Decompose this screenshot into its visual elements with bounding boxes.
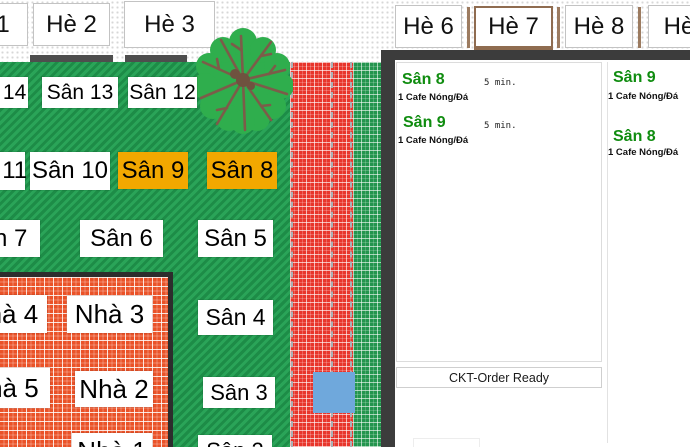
tab-separator [557,7,560,48]
order-item-line: 1 Cafe Nóng/Đá [398,135,468,146]
table-label-text: Sân 2 [206,438,264,447]
ckt-order-ready-label: CKT-Order Ready [449,371,549,385]
tab-label: Hè 6 [403,13,454,41]
table-label-text: Sân 12 [129,81,196,105]
table-label-text: Nhà 1 [77,436,146,447]
table-label-san-9[interactable]: Sân 9 [118,152,188,189]
pos-floorplan-screen: 1 Hè 2 Hè 3 Hè 6 Hè 7 Hè 8 Hè [0,0,690,447]
order-table-name: Sân 8 [613,128,656,146]
tab-he-1[interactable]: 1 [0,3,28,46]
order-table-name: Sân 9 [403,114,446,132]
tab-label: Hè 7 [488,13,539,41]
tab-he-2[interactable]: Hè 2 [33,3,110,46]
table-label-nha-2[interactable]: Nhà 2 [75,371,153,407]
table-label-text: Sân 10 [32,157,108,185]
table-label-san-13[interactable]: Sân 13 [42,77,118,108]
table-label-text: Sân 8 [211,157,274,185]
table-label-san-7[interactable]: Sân 7 [0,220,40,257]
table-label-text: Nhà 2 [79,374,148,405]
blue-table-object [313,372,355,413]
table-label-san-14[interactable]: Sân 14 [0,77,28,108]
tab-label: Hè [664,13,690,41]
table-label-san-3[interactable]: Sân 3 [203,377,275,408]
tab-separator [638,7,641,48]
order-item-line: 1 Cafe Nóng/Đá [608,91,678,102]
tab-he-7-selected[interactable]: Hè 7 [474,6,553,48]
table-label-text: Sân 9 [122,157,185,185]
tab-label: Hè 8 [574,13,625,41]
bottom-partial-button[interactable] [413,438,480,447]
order-table-name: Sân 8 [402,71,445,89]
tree-icon [193,28,293,134]
tab-he-8[interactable]: Hè 8 [565,5,633,48]
tab-he-9[interactable]: Hè [648,5,690,48]
table-label-san-4[interactable]: Sân 4 [198,300,273,335]
table-label-nha-3[interactable]: Nhà 3 [67,296,152,333]
order-wait-time: 5 min. [484,78,517,88]
tab-separator [467,7,470,48]
table-label-nha-1[interactable]: Nhà 1 [72,433,152,447]
table-label-san-2[interactable]: Sân 2 [198,435,272,447]
table-label-san-8[interactable]: Sân 8 [207,152,277,189]
order-item-line: 1 Cafe Nóng/Đá [398,92,468,103]
table-label-text: Sân 7 [0,225,27,253]
table-label-san-6[interactable]: Sân 6 [80,220,163,257]
order-wait-time: 5 min. [484,121,517,131]
order-item-line: 1 Cafe Nóng/Đá [608,147,678,158]
wall-segment [125,55,187,62]
table-label-text: Sân 14 [0,81,26,105]
order-column-1 [396,62,602,362]
tab-he-6[interactable]: Hè 6 [395,5,462,48]
table-label-text: Nhà 3 [75,299,144,330]
table-label-text: Sân 13 [47,81,114,105]
order-column-2 [607,62,690,443]
wall-segment [30,55,113,62]
table-label-san-11[interactable]: Sân 11 [0,152,25,190]
green-walkway [353,62,381,447]
table-label-text: Sân 11 [0,157,27,185]
table-label-text: Sân 6 [90,225,153,253]
tab-label: 1 [0,11,10,39]
table-label-nha-4[interactable]: Nhà 4 [0,295,47,333]
table-label-text: Nhà 4 [0,299,38,330]
tab-label: Hè 3 [144,11,195,39]
order-table-name: Sân 9 [613,69,656,87]
table-label-text: Sân 4 [205,304,265,331]
table-label-text: Sân 5 [204,225,267,253]
table-label-nha-5[interactable]: Nhà 5 [0,368,50,408]
ckt-order-ready-button[interactable]: CKT-Order Ready [396,367,602,388]
table-label-text: Nhà 5 [0,373,39,404]
table-label-san-12[interactable]: Sân 12 [128,77,197,108]
tab-label: Hè 2 [46,11,97,39]
table-label-san-10[interactable]: Sân 10 [30,152,110,190]
table-label-text: Sân 3 [210,380,268,406]
table-label-san-5[interactable]: Sân 5 [198,220,273,257]
